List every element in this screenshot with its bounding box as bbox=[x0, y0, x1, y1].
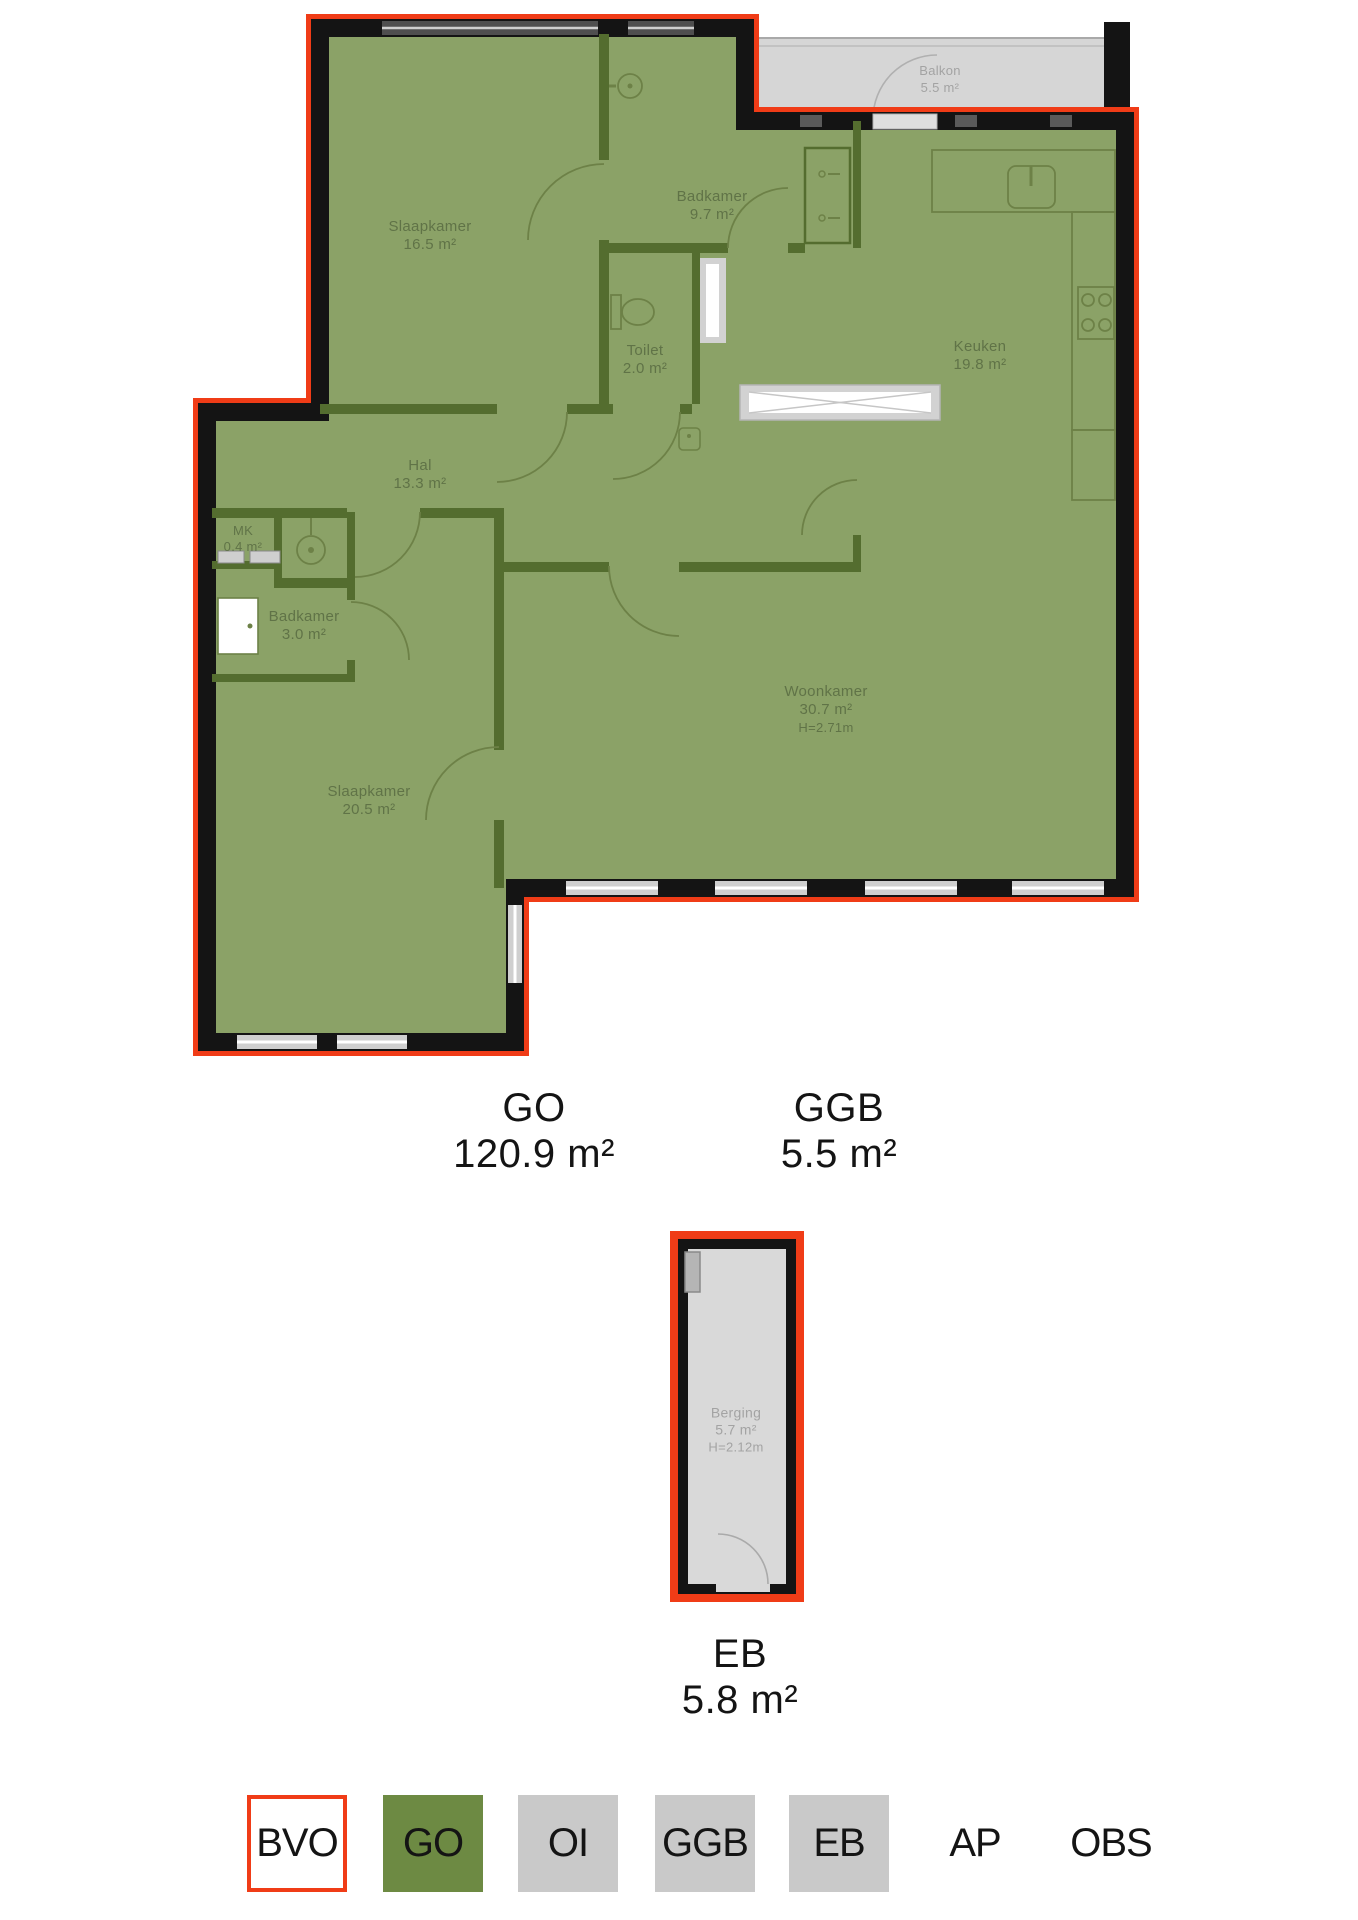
wall-bathroom-south-a bbox=[609, 243, 728, 253]
legend-label: GGB bbox=[662, 1821, 748, 1866]
legend: BVO GO OI GGB EB AP OBS bbox=[0, 1795, 1358, 1892]
wall-shaft-south bbox=[274, 578, 355, 588]
vent-balcony-wall-2 bbox=[955, 115, 977, 127]
legend-label: BVO bbox=[256, 1821, 337, 1866]
meter-box-icon-2 bbox=[250, 551, 280, 563]
wall-hall-living-b bbox=[679, 562, 861, 572]
storage-unit bbox=[677, 1238, 797, 1595]
shower-drain-dot bbox=[248, 624, 253, 629]
floorplan-page: Slaapkamer 16.5 m² Badkamer 9.7 m² Toile… bbox=[0, 0, 1358, 1920]
storage-door-opening bbox=[716, 1578, 770, 1592]
wall-kitchen-west-upper bbox=[853, 121, 861, 248]
wall-bathroom2-east-upper bbox=[347, 512, 355, 600]
legend-label: GO bbox=[403, 1821, 463, 1866]
wall-utility-north-b bbox=[420, 508, 494, 518]
legend-item-go: GO bbox=[383, 1795, 483, 1892]
wall-shaft-west bbox=[274, 518, 282, 578]
wall-toilet-east bbox=[692, 253, 700, 404]
legend-label: AP bbox=[949, 1821, 1000, 1866]
wall-hall-north-a bbox=[320, 404, 497, 414]
balcony-door-threshold bbox=[873, 114, 937, 129]
wall-hall-north-c bbox=[680, 404, 692, 414]
wall-toilet-west bbox=[599, 253, 609, 412]
legend-item-oi: OI bbox=[518, 1795, 618, 1892]
legend-label: EB bbox=[813, 1821, 864, 1866]
wall-hall-living-a bbox=[497, 562, 609, 572]
meter-box-icon-1 bbox=[218, 551, 244, 563]
floorplan-drawing bbox=[0, 0, 1358, 1920]
vent-balcony-wall-1 bbox=[800, 115, 822, 127]
legend-item-ggb: GGB bbox=[655, 1795, 755, 1892]
wall-kitchen-west-lower bbox=[853, 535, 861, 566]
wall-bedroom2-east-lower bbox=[494, 820, 504, 888]
duct-cabinet-stripe bbox=[706, 264, 719, 337]
legend-item-ap: AP bbox=[925, 1795, 1025, 1892]
exterior-wall bbox=[207, 28, 1125, 1042]
wall-bedroom2-east-upper bbox=[494, 566, 504, 750]
legend-item-obs: OBS bbox=[1061, 1795, 1161, 1892]
wall-utility-north-a bbox=[212, 508, 347, 518]
legend-item-bvo: BVO bbox=[247, 1795, 347, 1892]
apartment-outline bbox=[207, 28, 1125, 1042]
wall-bathroom-south-b bbox=[788, 243, 805, 253]
wall-hall-north-b bbox=[567, 404, 613, 414]
storage-meter-cabinet bbox=[685, 1252, 700, 1292]
vent-balcony-wall-3 bbox=[1050, 115, 1072, 127]
wall-bathroom2-south bbox=[212, 674, 355, 682]
legend-item-eb: EB bbox=[789, 1795, 889, 1892]
legend-label: OI bbox=[548, 1821, 588, 1866]
wall-bathroom-west-lower bbox=[599, 240, 609, 253]
legend-label: OBS bbox=[1070, 1821, 1151, 1866]
lamp-dot bbox=[308, 547, 314, 553]
wall-bathroom-west-upper bbox=[599, 34, 609, 160]
wall-hall-connector bbox=[494, 508, 504, 572]
shower-head-dot bbox=[628, 84, 633, 89]
hand-basin-tap-dot bbox=[687, 434, 691, 438]
